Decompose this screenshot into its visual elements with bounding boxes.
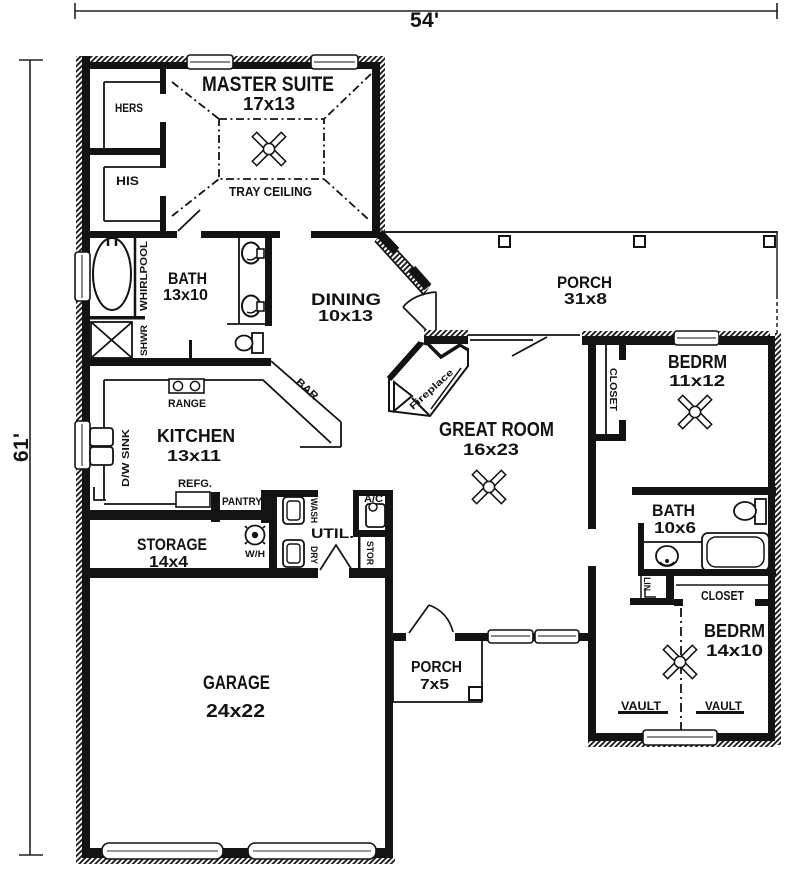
svg-text:BEDRM: BEDRM — [704, 621, 765, 641]
svg-text:7x5: 7x5 — [420, 676, 449, 693]
svg-text:VAULT: VAULT — [705, 699, 743, 713]
svg-text:TRAY CEILING: TRAY CEILING — [229, 185, 312, 199]
svg-text:SHWR: SHWR — [139, 325, 150, 356]
svg-text:UTIL.: UTIL. — [311, 525, 354, 541]
svg-text:STORAGE: STORAGE — [137, 535, 207, 554]
svg-text:PORCH: PORCH — [557, 273, 612, 292]
svg-text:61': 61' — [10, 433, 33, 462]
svg-text:31x8: 31x8 — [564, 291, 607, 308]
svg-text:LIN: LIN — [642, 577, 652, 591]
svg-text:54': 54' — [410, 9, 439, 32]
svg-text:13x11: 13x11 — [167, 448, 221, 465]
svg-text:17x13: 17x13 — [243, 94, 295, 114]
svg-text:DRY: DRY — [309, 546, 319, 564]
svg-text:KITCHEN: KITCHEN — [157, 426, 235, 446]
svg-text:CLOSET: CLOSET — [701, 588, 744, 603]
svg-text:GREAT ROOM: GREAT ROOM — [439, 419, 554, 441]
svg-text:14x10: 14x10 — [706, 641, 763, 660]
svg-text:PANTRY: PANTRY — [222, 496, 263, 508]
svg-text:16x23: 16x23 — [463, 440, 519, 459]
svg-text:STOR: STOR — [365, 541, 375, 565]
svg-text:24x22: 24x22 — [206, 701, 265, 721]
svg-text:W/H: W/H — [245, 549, 265, 560]
svg-text:PORCH: PORCH — [411, 659, 462, 676]
svg-text:BEDRM: BEDRM — [668, 352, 727, 372]
svg-text:CLOSET: CLOSET — [607, 368, 619, 412]
svg-text:BATH: BATH — [168, 269, 207, 288]
svg-text:WHIRLPOOL: WHIRLPOOL — [139, 241, 150, 311]
svg-text:13x10: 13x10 — [163, 287, 208, 304]
svg-text:MASTER SUITE: MASTER SUITE — [202, 73, 334, 96]
svg-text:VAULT: VAULT — [621, 699, 662, 713]
svg-text:GARAGE: GARAGE — [203, 673, 270, 694]
svg-text:BATH: BATH — [652, 501, 695, 520]
svg-text:10x6: 10x6 — [654, 520, 696, 537]
svg-text:DINING: DINING — [311, 290, 381, 309]
svg-text:HIS: HIS — [116, 174, 139, 188]
svg-text:WASH: WASH — [309, 498, 319, 523]
svg-text:10x13: 10x13 — [318, 308, 373, 325]
svg-text:RANGE: RANGE — [168, 398, 206, 410]
svg-text:HERS: HERS — [115, 101, 143, 115]
svg-text:REFG.: REFG. — [178, 478, 212, 490]
svg-text:D/W SINK: D/W SINK — [121, 428, 132, 487]
svg-text:11x12: 11x12 — [669, 373, 725, 390]
